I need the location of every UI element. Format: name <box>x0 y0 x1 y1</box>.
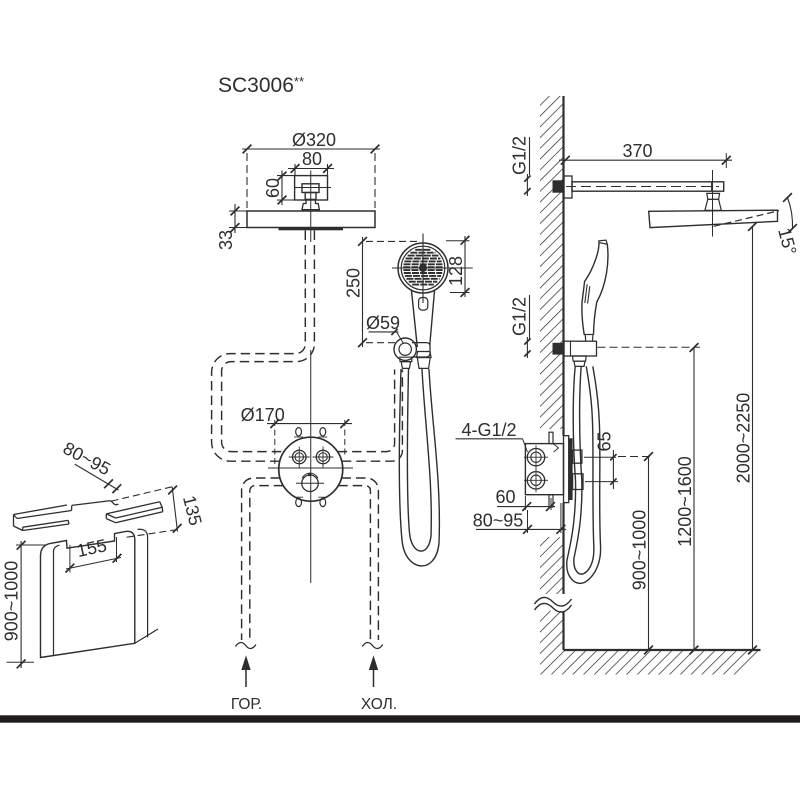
svg-text:Ø59: Ø59 <box>366 313 400 333</box>
svg-text:Ø170: Ø170 <box>241 405 285 425</box>
svg-text:ХОЛ.: ХОЛ. <box>361 696 397 713</box>
svg-text:ГОР.: ГОР. <box>231 696 262 713</box>
svg-text:900~1000: 900~1000 <box>630 510 650 591</box>
svg-text:1200~1600: 1200~1600 <box>675 456 695 547</box>
svg-text:G1/2: G1/2 <box>510 297 530 336</box>
svg-text:33: 33 <box>216 230 236 250</box>
svg-text:Ø320: Ø320 <box>292 130 336 150</box>
svg-text:80~95: 80~95 <box>473 511 524 531</box>
svg-text:900~1000: 900~1000 <box>2 561 22 642</box>
svg-text:4-G1/2: 4-G1/2 <box>461 420 516 440</box>
svg-text:370: 370 <box>622 141 652 161</box>
svg-text:128: 128 <box>446 256 466 286</box>
svg-text:250: 250 <box>344 268 364 298</box>
svg-text:80: 80 <box>302 149 322 169</box>
svg-text:2000~2250: 2000~2250 <box>734 393 754 484</box>
svg-text:SC3006**: SC3006** <box>218 74 304 97</box>
svg-text:60: 60 <box>263 178 283 198</box>
svg-text:60: 60 <box>495 487 515 507</box>
svg-text:65: 65 <box>595 431 615 451</box>
svg-text:G1/2: G1/2 <box>510 136 530 175</box>
